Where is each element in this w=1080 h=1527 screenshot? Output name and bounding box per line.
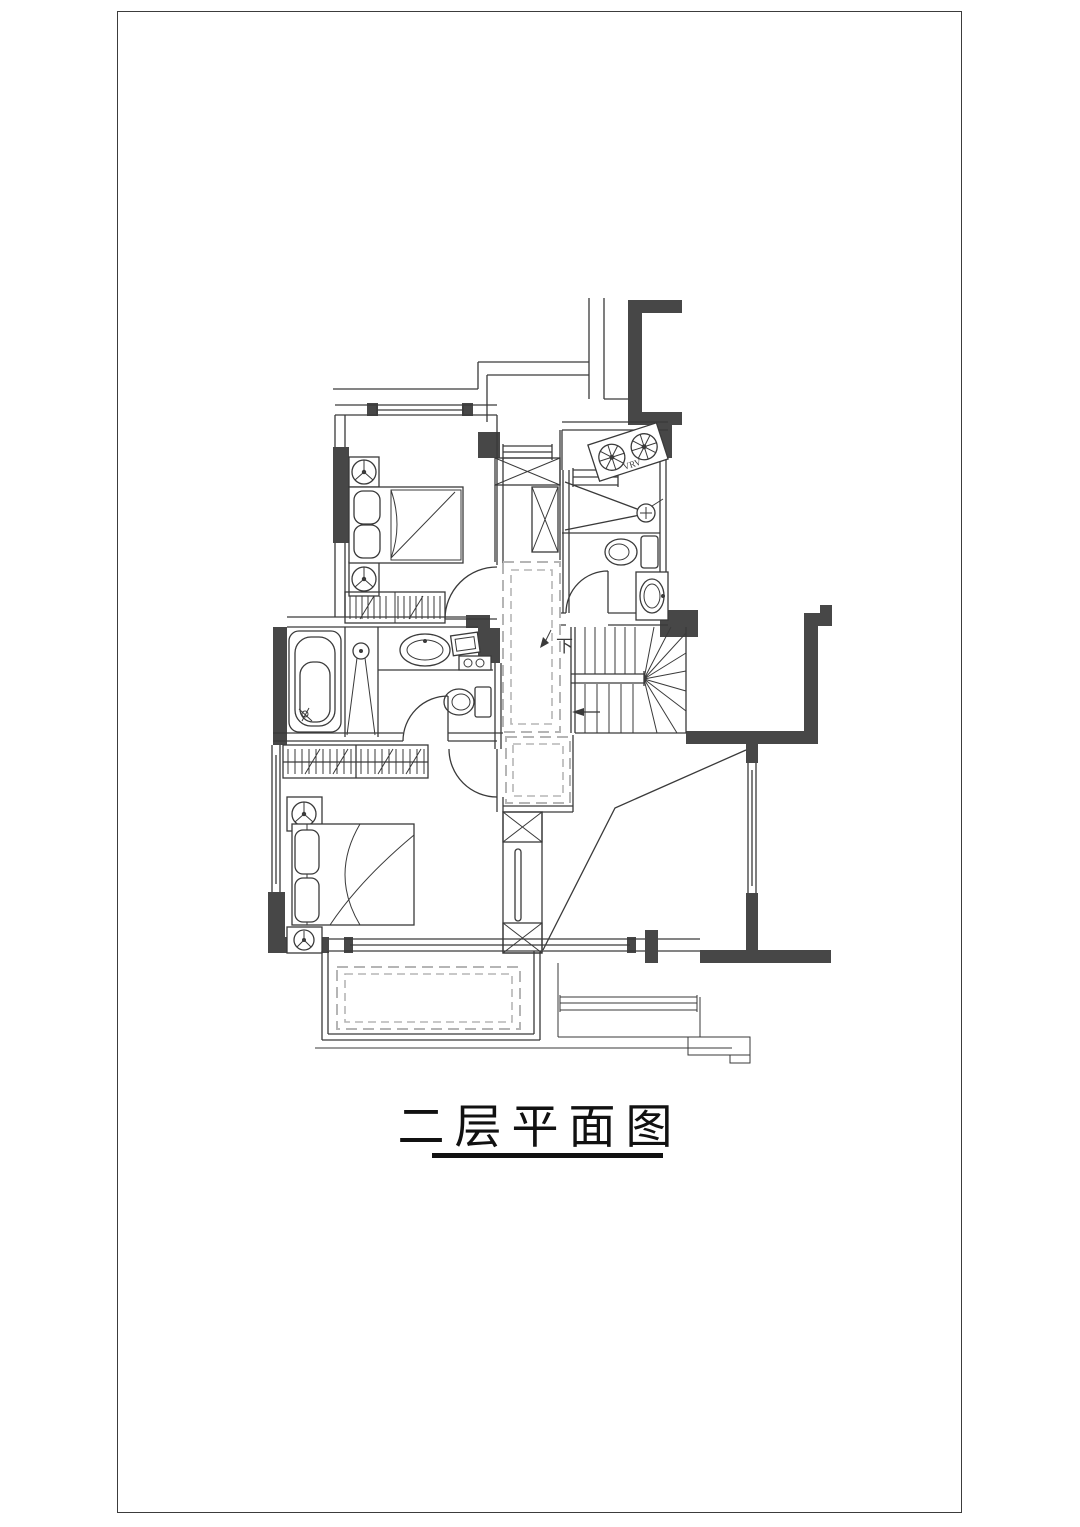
stairs-down-label: 下 bbox=[540, 630, 573, 656]
door-bathroom-lower bbox=[403, 696, 448, 741]
door-bedroom-upper bbox=[445, 567, 497, 619]
title-underline bbox=[432, 1153, 663, 1158]
closet-column bbox=[495, 430, 560, 562]
roof-terrace bbox=[543, 750, 756, 951]
hallway-void bbox=[449, 562, 573, 812]
nightstand bbox=[349, 562, 379, 596]
toilet-lower bbox=[444, 687, 491, 717]
control-panel bbox=[459, 656, 491, 670]
drawing-sheet: VRV bbox=[0, 0, 1080, 1527]
nightstand bbox=[349, 457, 379, 487]
sink-lower bbox=[400, 634, 450, 666]
shower-area-upper bbox=[562, 482, 663, 533]
cabinet-column bbox=[503, 812, 542, 953]
bathroom-lower bbox=[273, 627, 503, 741]
bedroom-upper bbox=[287, 405, 503, 627]
stair-direction-arrow bbox=[572, 708, 600, 716]
nightstand bbox=[287, 927, 322, 953]
ac-outdoor-unit: VRV bbox=[588, 423, 668, 481]
bed-lower bbox=[292, 824, 414, 925]
shower-area-lower bbox=[347, 643, 375, 735]
bathroom-upper: VRV bbox=[560, 422, 668, 625]
wardrobe-upper bbox=[345, 592, 445, 623]
sink-upper bbox=[636, 572, 668, 620]
plan-title: 二层平面图 bbox=[0, 1088, 1080, 1157]
floor-plan: VRV bbox=[0, 0, 1080, 1527]
lower-level-outline bbox=[315, 963, 750, 1063]
appliance-box bbox=[451, 632, 481, 656]
door-hallway bbox=[449, 749, 497, 797]
bathtub bbox=[289, 631, 341, 732]
balcony bbox=[322, 951, 540, 1040]
staircase: 下 bbox=[540, 627, 686, 733]
bedroom-lower bbox=[272, 745, 645, 953]
toilet-upper bbox=[605, 536, 658, 568]
svg-text:下: 下 bbox=[556, 637, 573, 656]
door-bathroom-upper bbox=[566, 571, 608, 613]
wardrobe-lower bbox=[283, 745, 428, 778]
bed-upper bbox=[349, 487, 463, 563]
